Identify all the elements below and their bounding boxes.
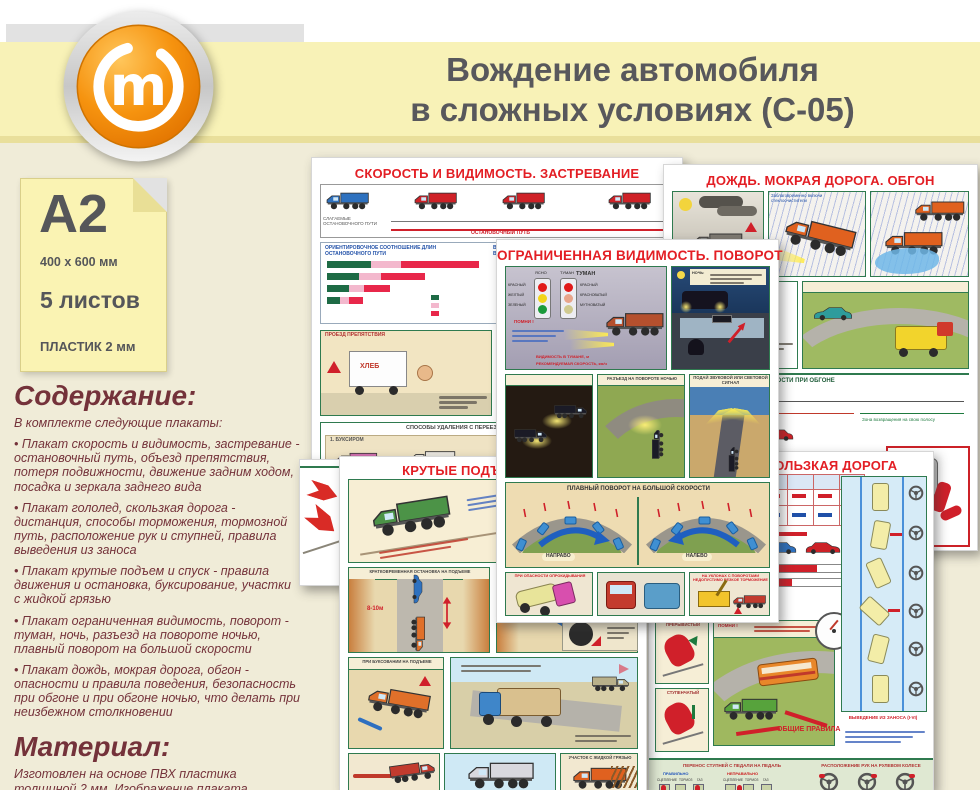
no-brake-header: НА УКЛОНАХ С ПОВОРОТАМИ НЕДОПУСТИМО РЕЗК… (691, 574, 770, 583)
truck-icon (727, 446, 739, 472)
interrupted-braking-panel: ПРЕРЫВИСТЫЙ (655, 620, 709, 684)
truck-icon (413, 189, 457, 211)
steering-wheel-icon (908, 525, 924, 541)
curved-road (597, 399, 685, 478)
meeting-panel (597, 572, 685, 616)
smooth-turn-header: ПЛАВНЫЙ ПОВОРОТ НА БОЛЬШОЙ СКОРОСТИ (506, 486, 770, 493)
speedometer-hub (832, 629, 836, 633)
stop-uphill-panel: КРАТКОВРЕМЕННАЯ ОСТАНОВКА НА ПОДЪЕМЕ 8-1… (348, 567, 490, 653)
fog-col-label: ТУМАН (560, 271, 574, 275)
pedal-icon (761, 784, 772, 790)
cone-icon (734, 607, 742, 614)
material-heading: Материал: (14, 731, 300, 763)
tow-label: 1. БУКСИРОМ (330, 438, 364, 444)
pedal-icon (725, 784, 736, 790)
foot-dot (737, 785, 742, 790)
bar (327, 297, 340, 304)
mud-splash (611, 766, 637, 788)
headlight-glow (714, 301, 726, 313)
table-value (818, 513, 832, 517)
bread-van: ХЛЕБ (349, 351, 407, 387)
table-value (792, 494, 806, 498)
steering-wheel-icon (908, 681, 924, 697)
pedal-label-gas: ГАЗ (697, 779, 703, 783)
yellow-label: ЖЕЛТЫЙ (508, 293, 524, 297)
steering-wheel-icon (908, 565, 924, 581)
van-panel (444, 753, 556, 790)
pedal-line (663, 731, 704, 744)
turn-right-diagram (510, 497, 634, 553)
skid-car (872, 483, 889, 511)
red-fog-label: КРАСНЫЙ (580, 283, 598, 287)
truck-icon (778, 209, 860, 260)
legend-swatch (431, 311, 439, 316)
night-pass-header: РАЗЪЕЗД НА ПОВОРОТЕ НОЧЬЮ (599, 377, 685, 382)
wheel (511, 716, 522, 727)
reddish-fog-label: КРАСНОВАТЫЙ (580, 293, 607, 297)
cargo-box (497, 688, 561, 716)
driver-head (417, 365, 433, 381)
skid-car (865, 557, 892, 589)
poster-title: ОГРАНИЧЕННАЯ ВИДИМОСТЬ. ПОВОРОТ (497, 248, 778, 263)
steering-wheel-icon (908, 603, 924, 619)
night-header: НОЧЬ: (692, 271, 704, 275)
red-arrow (890, 533, 902, 536)
headlight-beam (570, 339, 614, 350)
zone-return-label: Зона возвращения на свою полосу (862, 417, 962, 422)
van-icon (465, 758, 535, 790)
poster-title: СКОРОСТЬ И ВИДИМОСТЬ. ЗАСТРЕВАНИЕ (312, 166, 682, 181)
truck-icon (514, 427, 548, 443)
hands-position-header: РАСПОЛОЖЕНИЕ РУК НА РУЛЕВОМ КОЛЕСЕ (813, 763, 929, 768)
turn-left-label: НАЛЕВО (682, 553, 712, 561)
table-grid (787, 475, 788, 526)
bar (381, 273, 425, 280)
wheel (929, 348, 938, 357)
mud-header: УЧАСТОК С ЖИДКОЙ ГРЯЗЬЮ (561, 756, 638, 761)
stopping-path-label: ОСТАНОВОЧНЫЙ ПУТЬ (471, 231, 530, 237)
moon-icon (677, 271, 685, 279)
rocky-edge (463, 579, 489, 653)
caption-lines (439, 394, 487, 412)
stepped-braking-panel: СТУПЕНЧАТЫЙ (655, 688, 709, 752)
general-rules-label: ОБЩИЕ ПРАВИЛА (777, 726, 840, 734)
skid-car (858, 595, 890, 626)
ratio-header: ОРИЕНТИРОВОЧНОЕ СООТНОШЕНИЕ ДЛИН ОСТАНОВ… (325, 246, 475, 257)
rain-truck-scene: Заблаговременно включи стеклоочистители (768, 191, 866, 277)
format-label: А2 (39, 183, 108, 245)
bar (349, 285, 364, 292)
stopping-parts-label: СЛАГАЕМЫЕ ОСТАНОВОЧНОГО ПУТИ (323, 216, 385, 226)
product-title: Вождение автомобиля в сложных условиях (… (300, 50, 965, 130)
pedal-line (663, 663, 704, 676)
bar (327, 285, 349, 292)
distance-arrow-icon (441, 596, 453, 630)
green-arrow-icon (692, 705, 695, 719)
foot-dot (661, 785, 666, 790)
hand-dot (909, 774, 915, 778)
bar (359, 273, 381, 280)
feet-transfer-header: ПЕРЕНОС СТУПНЕЙ С ПЕДАЛИ НА ПЕДАЛЬ (657, 763, 807, 768)
caption-lines (607, 624, 635, 642)
table-grid (813, 475, 814, 526)
red-truck-front (606, 581, 636, 609)
pedal-label-clutch: СЦЕПЛЕНИЕ (723, 779, 743, 783)
bar (327, 273, 359, 280)
driver-silhouette (688, 339, 704, 355)
spinning-panel: ПРИ БУКСОВАНИИ НА ПОДЪЕМЕ (348, 657, 444, 749)
red-arrow (888, 609, 900, 612)
tipping-header: ПРИ ОПАСНОСТИ ОПРОКИДЫВАНИЯ (507, 574, 593, 578)
lane-line (860, 477, 862, 712)
description-block: Содержание: В комплекте следующие плакат… (14, 380, 300, 790)
night-panel: НОЧЬ: (671, 266, 770, 370)
page-fold-icon (133, 178, 167, 212)
car-icon (411, 574, 425, 604)
steering-wheel-icon (908, 641, 924, 657)
truck-icon (591, 674, 631, 692)
foot-dot (695, 785, 700, 790)
truck-icon (411, 617, 428, 653)
pedal-icon (743, 784, 754, 790)
turn-left-diagram (644, 497, 768, 553)
rain-splash-scene (870, 191, 969, 277)
page: Вождение автомобиля в сложных условиях (… (0, 0, 980, 790)
traffic-light-fog-icon (560, 278, 577, 319)
service-truck-cab (937, 322, 953, 336)
contents-item: • Плакат скорость и видимость, застреван… (14, 437, 300, 494)
incorrect-label: НЕПРАВИЛЬНО (727, 772, 758, 776)
skid-diagram (841, 476, 927, 712)
wheel (540, 606, 550, 616)
warning-sign-icon (327, 361, 341, 373)
car-interior (672, 313, 770, 369)
red-label: КРАСНЫЙ (508, 283, 526, 287)
wheel (899, 348, 908, 357)
obstacle-panel: ПРОЕЗД ПРЕПЯТСТВИЯ ХЛЕБ (320, 330, 492, 416)
warning-sign-icon (745, 222, 757, 232)
murky-fog-label: МУТНОВАТЫЙ (580, 303, 605, 307)
format-badge: А2 400 х 600 мм 5 листов ПЛАСТИК 2 мм (20, 178, 167, 372)
truck-icon (363, 680, 433, 721)
caption-lines (754, 624, 824, 634)
blue-van (644, 583, 680, 609)
truck-icon (722, 695, 778, 721)
distance-label: 8-10м (367, 606, 383, 613)
red-arrow-icon (306, 480, 339, 504)
turn-right-label: НАПРАВО (542, 553, 575, 561)
truck-icon (365, 490, 456, 541)
skid-car (867, 633, 890, 664)
caption-strip (803, 282, 968, 293)
hand-dot (819, 774, 825, 778)
hillside-panel (348, 753, 440, 790)
night-curve-panel (505, 374, 593, 478)
truck-icon (325, 189, 369, 211)
contents-heading: Содержание: (14, 380, 300, 412)
night-pass-panel: РАЗЪЕЗД НА ПОВОРОТЕ НОЧЬЮ (597, 374, 685, 478)
no-brake-panel: НА УКЛОНАХ С ПОВОРОТАМИ НЕДОПУСТИМО РЕЗК… (689, 572, 770, 616)
clear-col-label: ЯСНО (535, 271, 547, 275)
fog-header: ТУМАН (576, 271, 595, 277)
recommended-speed-label: РЕКОМЕНДУЕМАЯ СКОРОСТЬ, км/ч (536, 362, 607, 366)
bread-van-label: ХЛЕБ (360, 363, 379, 371)
wheel (389, 386, 398, 395)
sun-icon (679, 198, 692, 211)
obstacle-header: ПРОЕЗД ПРЕПЯТСТВИЯ (325, 333, 385, 339)
truck-icon (607, 189, 651, 211)
sheet-count-label: 5 листов (40, 287, 140, 314)
signal-header: ПОДАЙ ЗВУКОВОЙ ИЛИ СВЕТОВОЙ СИГНАЛ (691, 376, 770, 385)
blue-arrow (357, 717, 382, 731)
headlight-glow (680, 301, 692, 313)
tipping-panel: ПРИ ОПАСНОСТИ ОПРОКИДЫВАНИЯ (505, 572, 593, 616)
rocky-edge (349, 579, 375, 653)
contents-item: • Плакат крутые подъем и спуск - правила… (14, 564, 300, 606)
stepped-label: СТУПЕНЧАТЫЙ (656, 691, 709, 696)
legend-swatch (431, 303, 439, 308)
bar (327, 261, 371, 268)
truck-icon (554, 403, 588, 419)
table-value (818, 494, 832, 498)
panel-header-strip: ПРИ БУКСОВАНИИ НА ПОДЪЕМЕ (349, 658, 443, 670)
bar (349, 297, 363, 304)
chock-icon (591, 636, 601, 646)
bar (340, 297, 349, 304)
dimensions-label: 400 х 600 мм (40, 255, 118, 269)
remember-label: ПОМНИ ! (514, 319, 534, 324)
crane-truck (698, 591, 730, 607)
table-value (792, 513, 806, 517)
pedal-label-brake: ТОРМОЗ (679, 779, 692, 783)
slope-line (303, 540, 342, 554)
poster-limited-visibility: ОГРАНИЧЕННАЯ ВИДИМОСТЬ. ПОВОРОТ ТУМАН ЯС… (496, 239, 779, 623)
mud-panel: УЧАСТОК С ЖИДКОЙ ГРЯЗЬЮ (560, 753, 638, 790)
wheel (520, 603, 530, 613)
bar (371, 261, 401, 268)
correct-label: ПРАВИЛЬНО (663, 772, 689, 776)
water-puddle (875, 248, 939, 274)
night-note: НОЧЬ: (690, 269, 766, 285)
pink-arrow (619, 664, 629, 674)
steering-wheel-icon (908, 485, 924, 501)
logo-letter: m (110, 54, 167, 118)
contents-item: • Плакат дождь, мокрая дорога, обгон - о… (14, 663, 300, 720)
traffic-light-clear-icon (534, 278, 551, 319)
divider (637, 497, 639, 565)
caption-lines (512, 327, 564, 345)
truck-icon (650, 429, 664, 459)
truck-icon (501, 189, 545, 211)
cloud (717, 206, 757, 216)
hand-dot (871, 774, 877, 778)
truck-icon (604, 309, 664, 337)
pedal-label-gas: ГАЗ (763, 779, 769, 783)
contents-item: • Плакат гололед, скользкая дорога - дис… (14, 501, 300, 558)
pedal-label-brake: ТОРМОЗ (745, 779, 758, 783)
spinning-header: ПРИ БУКСОВАНИИ НА ПОДЪЕМЕ (351, 660, 443, 665)
smooth-turn-panel: ПЛАВНЫЙ ПОВОРОТ НА БОЛЬШОЙ СКОРОСТИ НАПР… (505, 482, 770, 568)
truck-icon (388, 757, 439, 785)
poster-title: ДОЖДЬ. МОКРАЯ ДОРОГА. ОБГОН (664, 173, 977, 188)
product-title-line1: Вождение автомобиля (300, 50, 965, 90)
skid-car (870, 520, 892, 551)
pedal-label-clutch: СЦЕПЛЕНИЕ (657, 779, 677, 783)
signal-panel: ПОДАЙ ЗВУКОВОЙ ИЛИ СВЕТОВОЙ СИГНАЛ (689, 374, 770, 478)
pedal-icon (675, 784, 686, 790)
stopping-distance-panel: СЛАГАЕМЫЕ ОСТАНОВОЧНОГО ПУТИ ОСТАНОВОЧНЫ… (320, 184, 674, 238)
caption-lines (575, 732, 631, 745)
fog-visibility-label: ВИДИМОСТЬ В ТУМАНЕ, м (536, 355, 589, 359)
contents-intro: В комплекте следующие плакаты: (14, 416, 300, 430)
brand-logo: m (62, 10, 215, 163)
truck-cab (479, 692, 501, 716)
bar (364, 285, 390, 292)
car-icon (805, 540, 841, 555)
red-arrow-icon (304, 504, 340, 538)
diagram-zone-line (860, 413, 964, 414)
pink-cab (552, 581, 577, 607)
product-title-line2: в сложных условиях (С-05) (300, 90, 965, 130)
green-label: ЗЕЛЕНЫЙ (508, 303, 526, 307)
caption-strip (506, 375, 592, 386)
fog-panel: ТУМАН ЯСНО ТУМАН КРАСНЫЙ ЖЕЛТЫЙ ЗЕЛЕНЫЙ … (505, 266, 667, 370)
material-text: Изготовлен на основе ПВХ пластика толщин… (14, 767, 300, 790)
rear-view-mirror (712, 315, 732, 323)
caption-lines (845, 728, 925, 746)
red-note-lines (379, 535, 470, 561)
wheel (483, 714, 494, 725)
bar (401, 261, 479, 268)
descent-scene (450, 657, 638, 749)
wheel (541, 716, 552, 727)
contents-item: • Плакат ограниченная видимость, поворот… (14, 614, 300, 656)
tire-icon (569, 622, 593, 646)
warning-sign-icon (419, 676, 431, 686)
legend-swatch (431, 295, 439, 300)
car-icon (813, 304, 853, 322)
panel-header-strip: РАЗЪЕЗД НА ПОВОРОТЕ НОЧЬЮ (598, 375, 684, 386)
windshield (610, 585, 632, 594)
roadside-scene (802, 281, 969, 369)
truck-icon (913, 198, 965, 222)
skid-recovery-label: ВЫВЕДЕНИЕ ИЗ ЗАНОСА (I-VI) (835, 715, 931, 720)
wipers-note: Заблаговременно включи стеклоочистители (771, 194, 841, 204)
remember-label: ПОМНИ ! (718, 623, 738, 628)
measure-line (391, 221, 667, 222)
caption-lines (461, 662, 541, 675)
table-grid (839, 475, 840, 526)
headlight-beam (564, 329, 608, 340)
bottom-strip: ПЕРЕНОС СТУПНЕЙ С ПЕДАЛИ НА ПЕДАЛЬ РАСПО… (649, 758, 933, 790)
material-label: ПЛАСТИК 2 мм (40, 339, 136, 354)
wheel (355, 386, 364, 395)
interrupted-label: ПРЕРЫВИСТЫЙ (656, 623, 709, 628)
lane-line (902, 477, 904, 712)
skid-car (872, 675, 889, 703)
